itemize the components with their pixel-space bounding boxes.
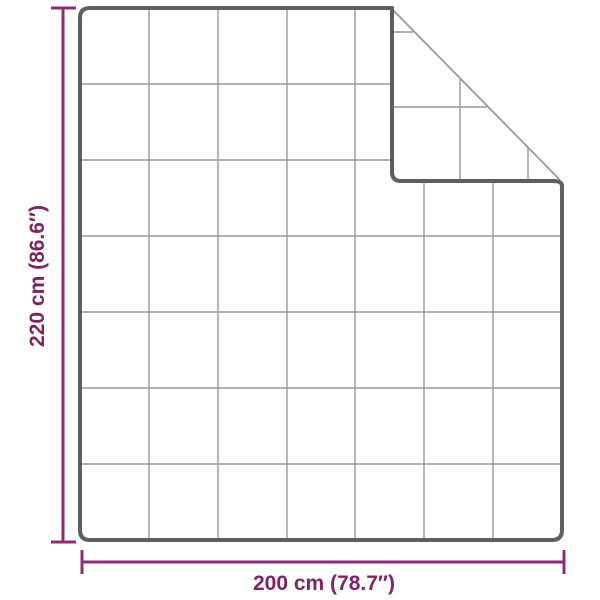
height-dimension-label: 220 cm (86.6″) (26, 205, 49, 347)
width-dimension (82, 550, 564, 574)
diagram-canvas: 220 cm (86.6″) 200 cm (78.7″) (0, 0, 600, 600)
width-dimension-label: 200 cm (78.7″) (253, 572, 395, 595)
blanket-surface (80, 8, 562, 540)
height-dimension (51, 8, 76, 542)
blanket-dimension-diagram: 220 cm (86.6″) 200 cm (78.7″) (0, 0, 600, 600)
